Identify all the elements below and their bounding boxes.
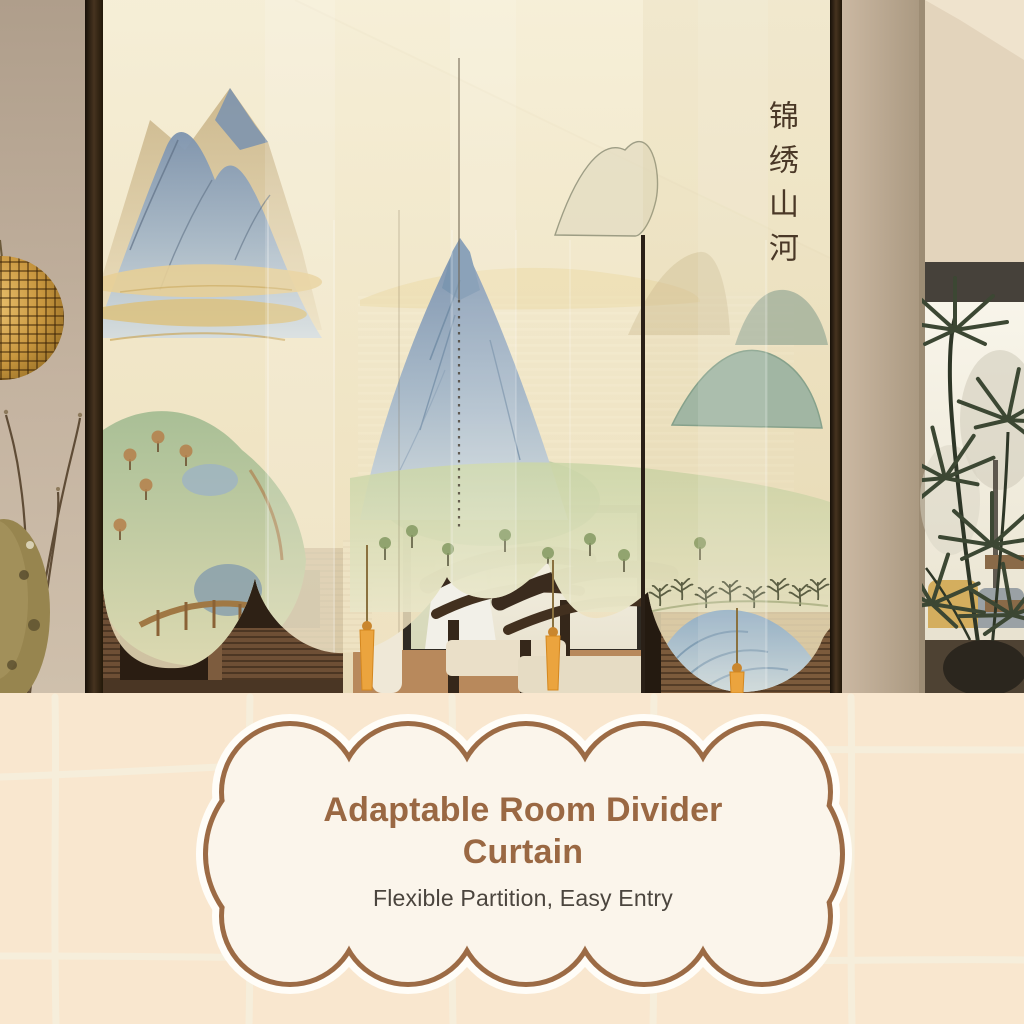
product-subtitle: Flexible Partition, Easy Entry: [373, 885, 673, 912]
right-section: [830, 0, 1024, 693]
calligraphy-text: 锦绣山河: [758, 100, 802, 320]
window-beam: [925, 262, 1024, 302]
bubble-text: Adaptable Room Divider Curtain Flexible …: [23, 789, 1023, 912]
panel-edge: [641, 235, 645, 693]
left-wall-section: [0, 0, 103, 693]
product-image: 锦绣山河: [0, 0, 1024, 1024]
right-frame-post: [830, 0, 842, 693]
right-wall-column: [842, 0, 925, 693]
room-scene: [0, 0, 1024, 693]
product-title: Adaptable Room Divider Curtain: [288, 789, 758, 873]
caption-banner: Adaptable Room Divider Curtain Flexible …: [0, 693, 1024, 1024]
room-divider-curtain: [95, 0, 830, 693]
left-frame-post: [85, 0, 103, 693]
room-photo: 锦绣山河: [0, 0, 1024, 693]
